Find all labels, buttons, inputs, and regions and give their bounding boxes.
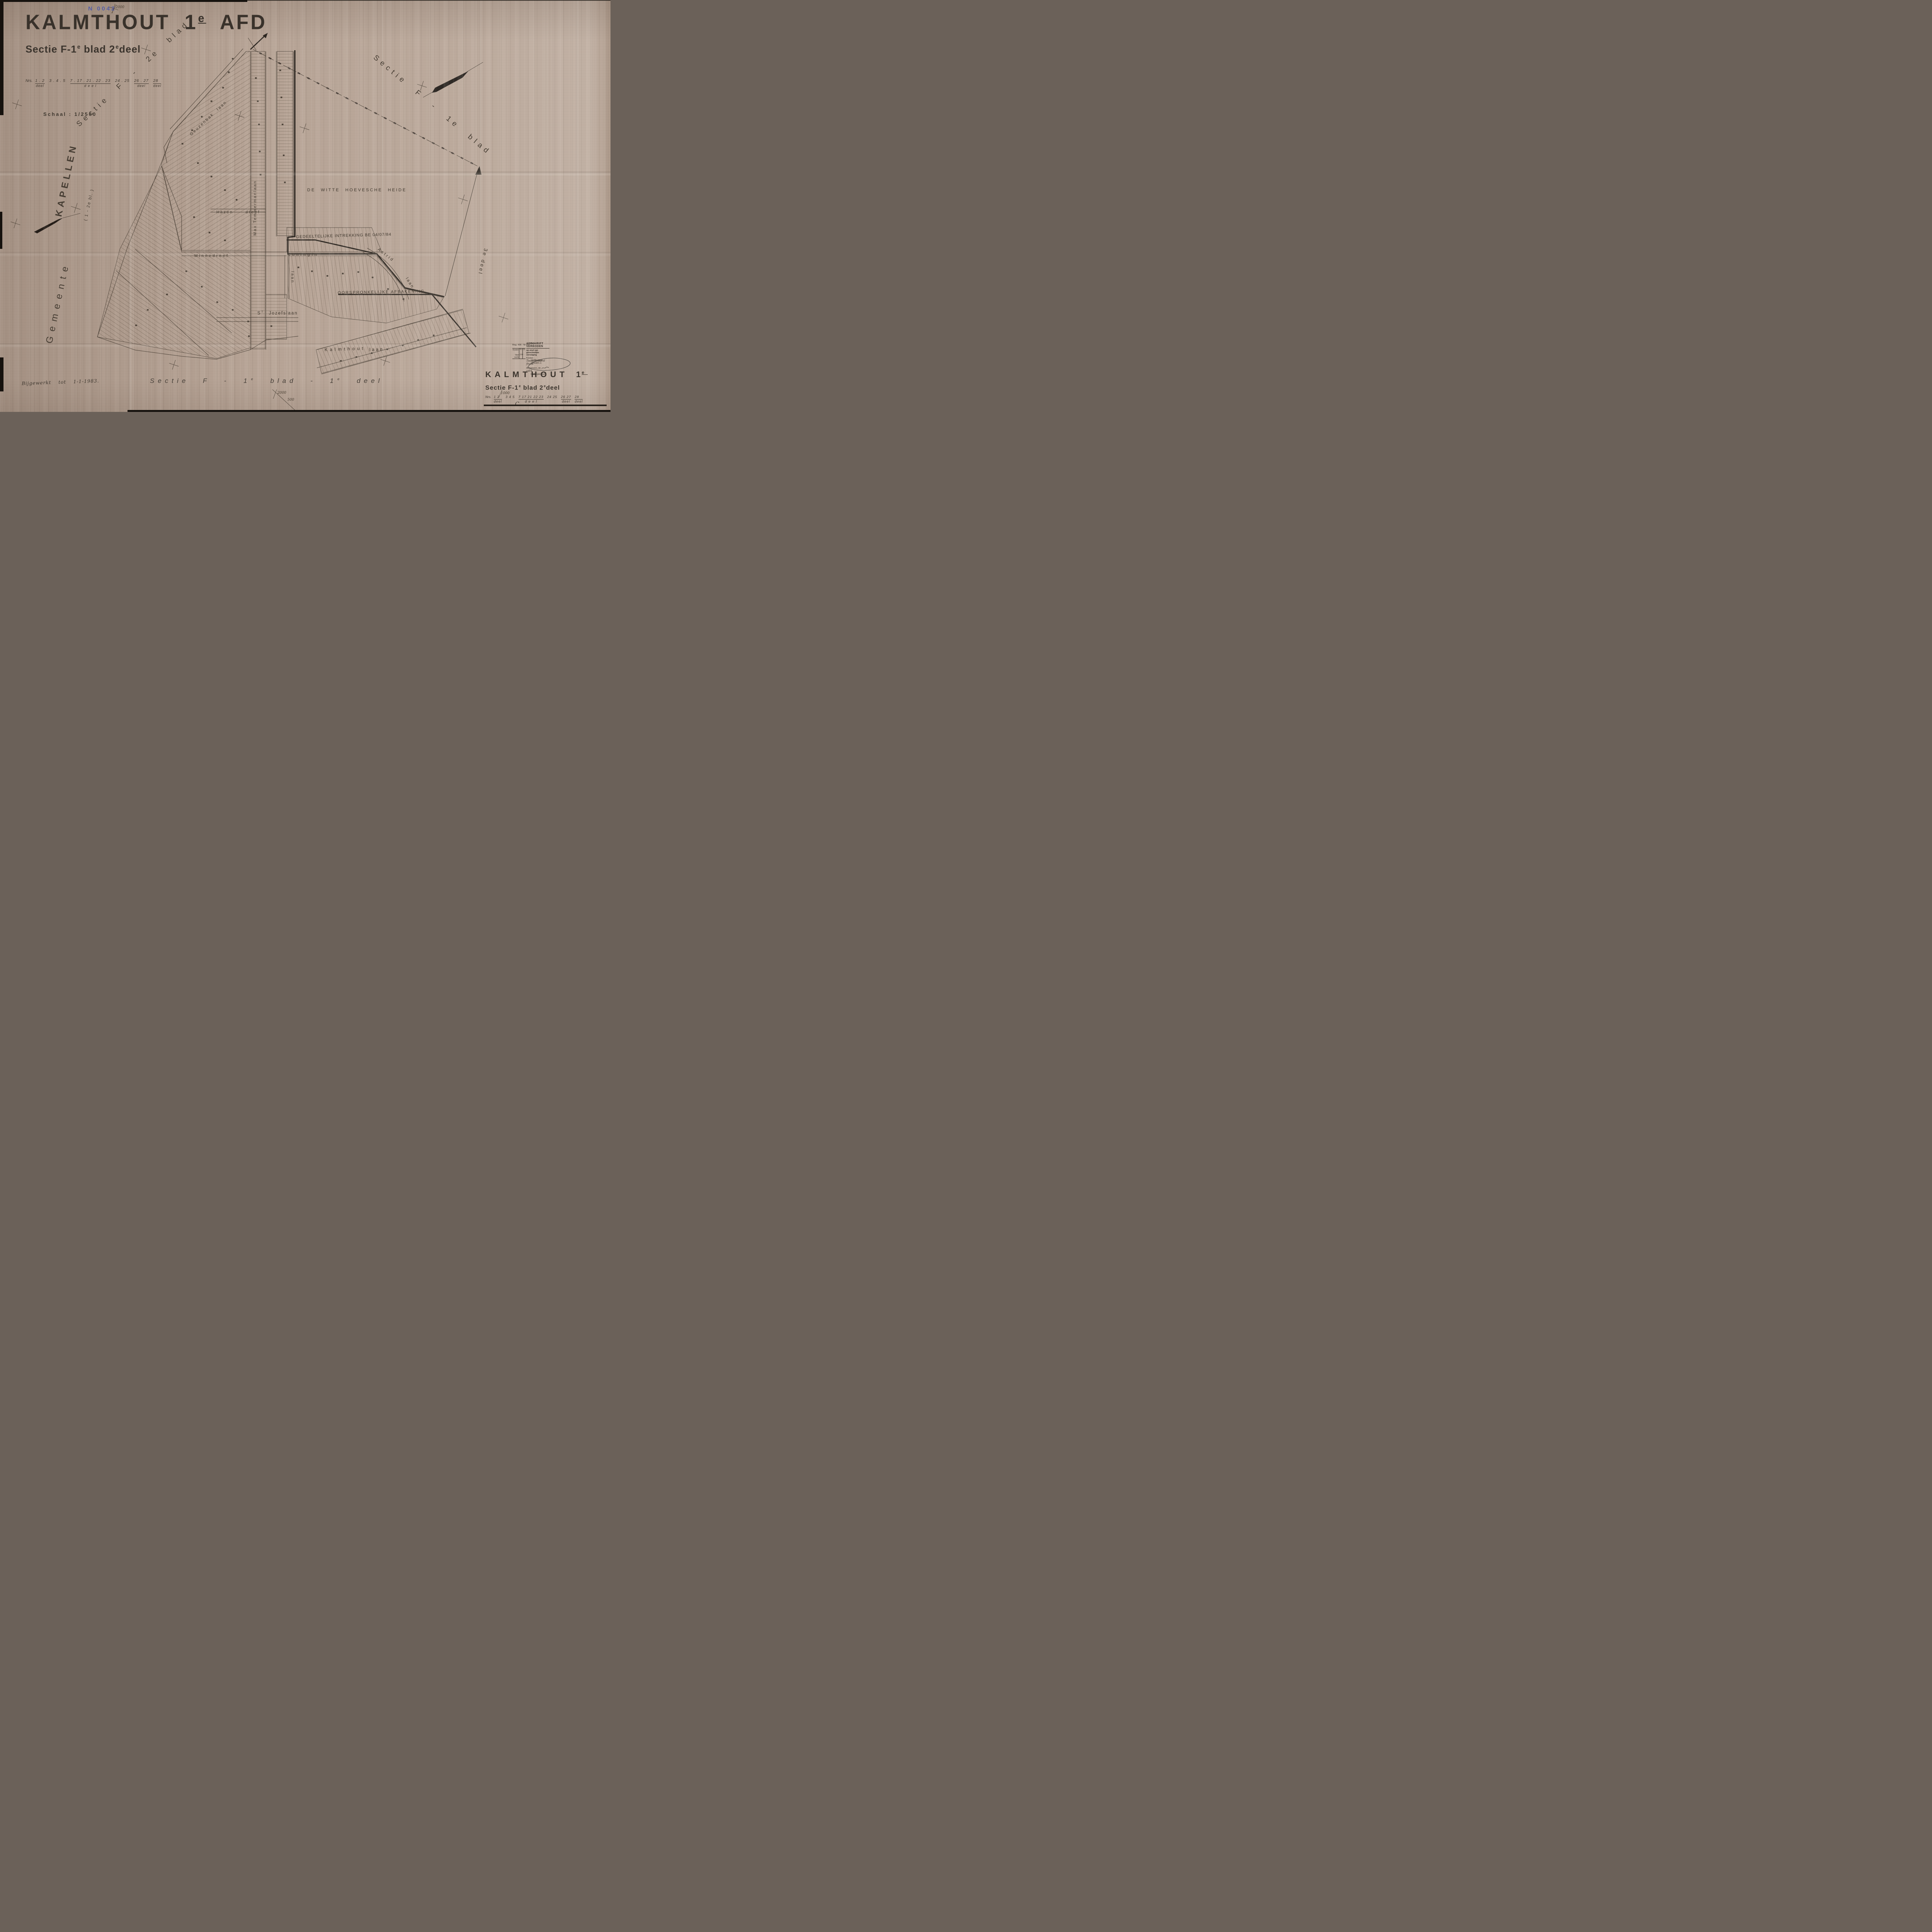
street-kalmthout-laan: laan: [369, 347, 384, 352]
nrs-values: 3 4 5: [505, 395, 515, 399]
street-kalmthout: Kalmthout: [325, 346, 366, 352]
fee-table-header: Kosten : Fr. Ct.: [512, 349, 526, 354]
deel3-label: 3e deel: [476, 245, 490, 279]
parcel-numbers-line: Nrs. 1 . 2deel 3 . 4 . 5 7 . 17 . 21 . 2…: [26, 79, 165, 88]
jozefslaan-sup: T: [262, 311, 264, 313]
bottom-label-sup: e: [337, 377, 343, 381]
verificateur-block: Verificateur Officiers J.: [531, 359, 543, 365]
nrs-group: 3 4 5: [505, 395, 515, 399]
nrs-values: 7 . 17 . 21 . 22 . 23: [70, 79, 111, 84]
footer-subtitle-sup: e: [519, 384, 521, 388]
scan-edge: [247, 0, 611, 1]
nrs-values: 28: [153, 79, 161, 84]
nrs-values: 3 . 4 . 5: [49, 79, 65, 83]
bottom-section-label: Sectie F - 1e blad - 1e deel: [150, 377, 383, 385]
grid-tick-label: 2000: [277, 391, 286, 395]
blue-number-stamp: N 0042: [88, 5, 116, 12]
page-title: KALMTHOUT 1e AFD: [26, 10, 267, 34]
fee-vast-recht-label: Vast recht: [512, 354, 519, 359]
boundary-lines: [34, 5, 570, 411]
nrs-deel-label: deel: [153, 84, 161, 88]
jozefslaan-part: Jozefslaan: [269, 311, 298, 316]
fee-fr-label: Fr.: [519, 349, 522, 354]
nrs-deel-label: deel: [575, 400, 583, 403]
kapellen-label: KAPELLEN: [52, 137, 80, 223]
nrs-group: 28deel: [575, 395, 583, 403]
grid-tick-label: 2000: [116, 5, 124, 9]
grid-tick-label: 500: [287, 398, 294, 402]
nrs-group: 26 . 27deel: [134, 79, 149, 88]
verificateur-label: Verificateur: [531, 359, 543, 362]
fee-kosten-label: Kosten :: [512, 349, 519, 354]
straf-line: op straf van gerechtelijke vervolging: [526, 349, 549, 356]
fold-crease: [129, 0, 132, 412]
section-label-f1: Sectie F - 1e blad: [372, 54, 475, 142]
sheet-subtitle: Sectie F-1e blad 2edeel: [26, 43, 141, 55]
subtitle-sup: e: [116, 44, 119, 50]
subtitle-part: Sectie F-1: [26, 43, 77, 55]
scan-edge: [128, 410, 611, 412]
nrs-deel-label: deel: [494, 400, 502, 403]
area-label-heide: DE WITTE HOEVESCHE HEIDE: [307, 188, 406, 192]
bottom-label-sup: e: [251, 377, 257, 381]
bottom-label-part: Sectie F - 1: [150, 377, 251, 384]
street-koningin: Koningin: [287, 252, 319, 257]
annotation-intrekking: GEDEELTELIJKE INTREKKING BE 04/07/84: [296, 232, 391, 239]
gemeente-label: Gemeente: [43, 256, 73, 349]
street-minnedreef: Minnedreef: [194, 254, 229, 258]
street-st-jozefslaan: ST Jozefslaan: [257, 311, 298, 316]
grid-tick-label: 1000: [501, 391, 510, 395]
stamp-fee-table: Kosten : Fr. Ct. Vast recht 200 -: [512, 348, 526, 359]
nrs-label: Nrs.: [485, 395, 492, 399]
footer-title-ordinal: e: [582, 371, 588, 375]
officiers-signature-name: Officiers J.: [531, 362, 543, 365]
footer-subtitle-part: blad 2: [523, 384, 543, 391]
subtitle-sup: e: [77, 44, 81, 50]
afschrift-verboden: AFSCHRIFT VERBODEN: [526, 342, 549, 349]
scan-edge: [0, 357, 3, 391]
title-city: KALMTHOUT: [26, 11, 170, 34]
title-ordinal: e: [198, 12, 206, 25]
c-mark: C: [515, 401, 519, 407]
bottom-label-part: deel: [357, 377, 383, 384]
nrs-label: Nrs.: [26, 79, 32, 83]
nrs-deel-label: deel: [561, 400, 571, 403]
kapellen-blad-note: ( 1 - 2e bl. ): [82, 185, 95, 225]
bottom-label-part: blad - 1: [270, 377, 337, 384]
nrs-group: 3 . 4 . 5: [49, 79, 65, 83]
nrs-deel-label: d e e l: [519, 400, 544, 403]
nrs-values: 26 . 27: [134, 79, 149, 84]
street-lines: [97, 49, 471, 374]
survey-cross-marks: [9, 2, 510, 371]
fold-crease: [576, 0, 579, 412]
scan-edge: [0, 212, 2, 249]
subtitle-part: deel: [119, 43, 141, 55]
jozefslaan-part: S: [257, 311, 261, 316]
footer-subtitle-part: Sectie F-1: [485, 384, 519, 391]
street-astrid: Astrid: [377, 247, 399, 266]
footer-title-city: KALMTHOUT: [485, 370, 568, 379]
sheet-border-rule: [484, 405, 607, 406]
fee-amount: 200: [519, 354, 522, 359]
street-geuzenbaklaan: Geuzenbak laan: [189, 94, 235, 136]
nrs-group: 7 . 17 . 21 . 22 . 23d e e l: [70, 79, 111, 88]
nrs-deel-label: deel: [134, 84, 149, 88]
building-marks: [135, 58, 435, 362]
cadastral-map-sheet: KALMTHOUT 1e AFD N 0042 2000 Sectie F-1e…: [0, 0, 611, 412]
nrs-group: 7 17 21 22 23d e e l: [519, 395, 544, 403]
nrs-values: 24 25: [547, 395, 557, 399]
certification-stamp: Reg. 436 : Nr Kosten : Fr. Ct. Vast rech…: [512, 342, 549, 346]
parcel-blocks: [97, 51, 469, 373]
handwriting-squiggle: [541, 366, 549, 369]
scan-edge: [0, 0, 247, 2]
nrs-values: 1 . 2: [35, 79, 44, 84]
footer-subtitle: Sectie F-1e blad 2edeel: [485, 384, 560, 391]
nrs-group: 26 27deel: [561, 395, 571, 403]
fee-ct-label: Ct.: [522, 349, 526, 354]
street-koningin-laan: laan: [290, 271, 295, 287]
fold-crease: [0, 172, 611, 176]
fold-crease: [479, 0, 483, 412]
footer-title: KALMTHOUT 1e: [485, 370, 588, 379]
stamp-reg-label: Reg. 436 : Nr: [512, 344, 526, 346]
nrs-values: 28: [575, 395, 583, 400]
nrs-group: 28deel: [153, 79, 161, 88]
fee-cents: -: [522, 354, 526, 359]
footer-title-number: 1: [576, 370, 582, 379]
nrs-deel-label: deel: [35, 84, 44, 88]
nrs-values: 1 2: [494, 395, 502, 400]
street-max-temmermanlaan: Max Temmermanlaan: [253, 177, 257, 239]
nrs-deel-label: d e e l: [70, 84, 111, 88]
scan-edge: [0, 0, 3, 115]
footer-parcel-numbers: Nrs. 1 2deel 3 4 5 7 17 21 22 23d e e l …: [485, 395, 585, 403]
footer-subtitle-part: deel: [546, 384, 560, 391]
nrs-values: 7 17 21 22 23: [519, 395, 544, 400]
title-afd: AFD: [220, 11, 267, 34]
nrs-group: 1 2deel: [494, 395, 502, 403]
subtitle-part: blad 2: [84, 43, 115, 55]
fee-table-row: Vast recht 200 -: [512, 354, 526, 359]
nrs-group: 24 25: [547, 395, 557, 399]
nrs-group: 1 . 2deel: [35, 79, 44, 88]
nrs-values: 26 27: [561, 395, 571, 400]
bijgewerkt-note: Bijgewerkt tot 1-1-1983.: [22, 378, 99, 386]
